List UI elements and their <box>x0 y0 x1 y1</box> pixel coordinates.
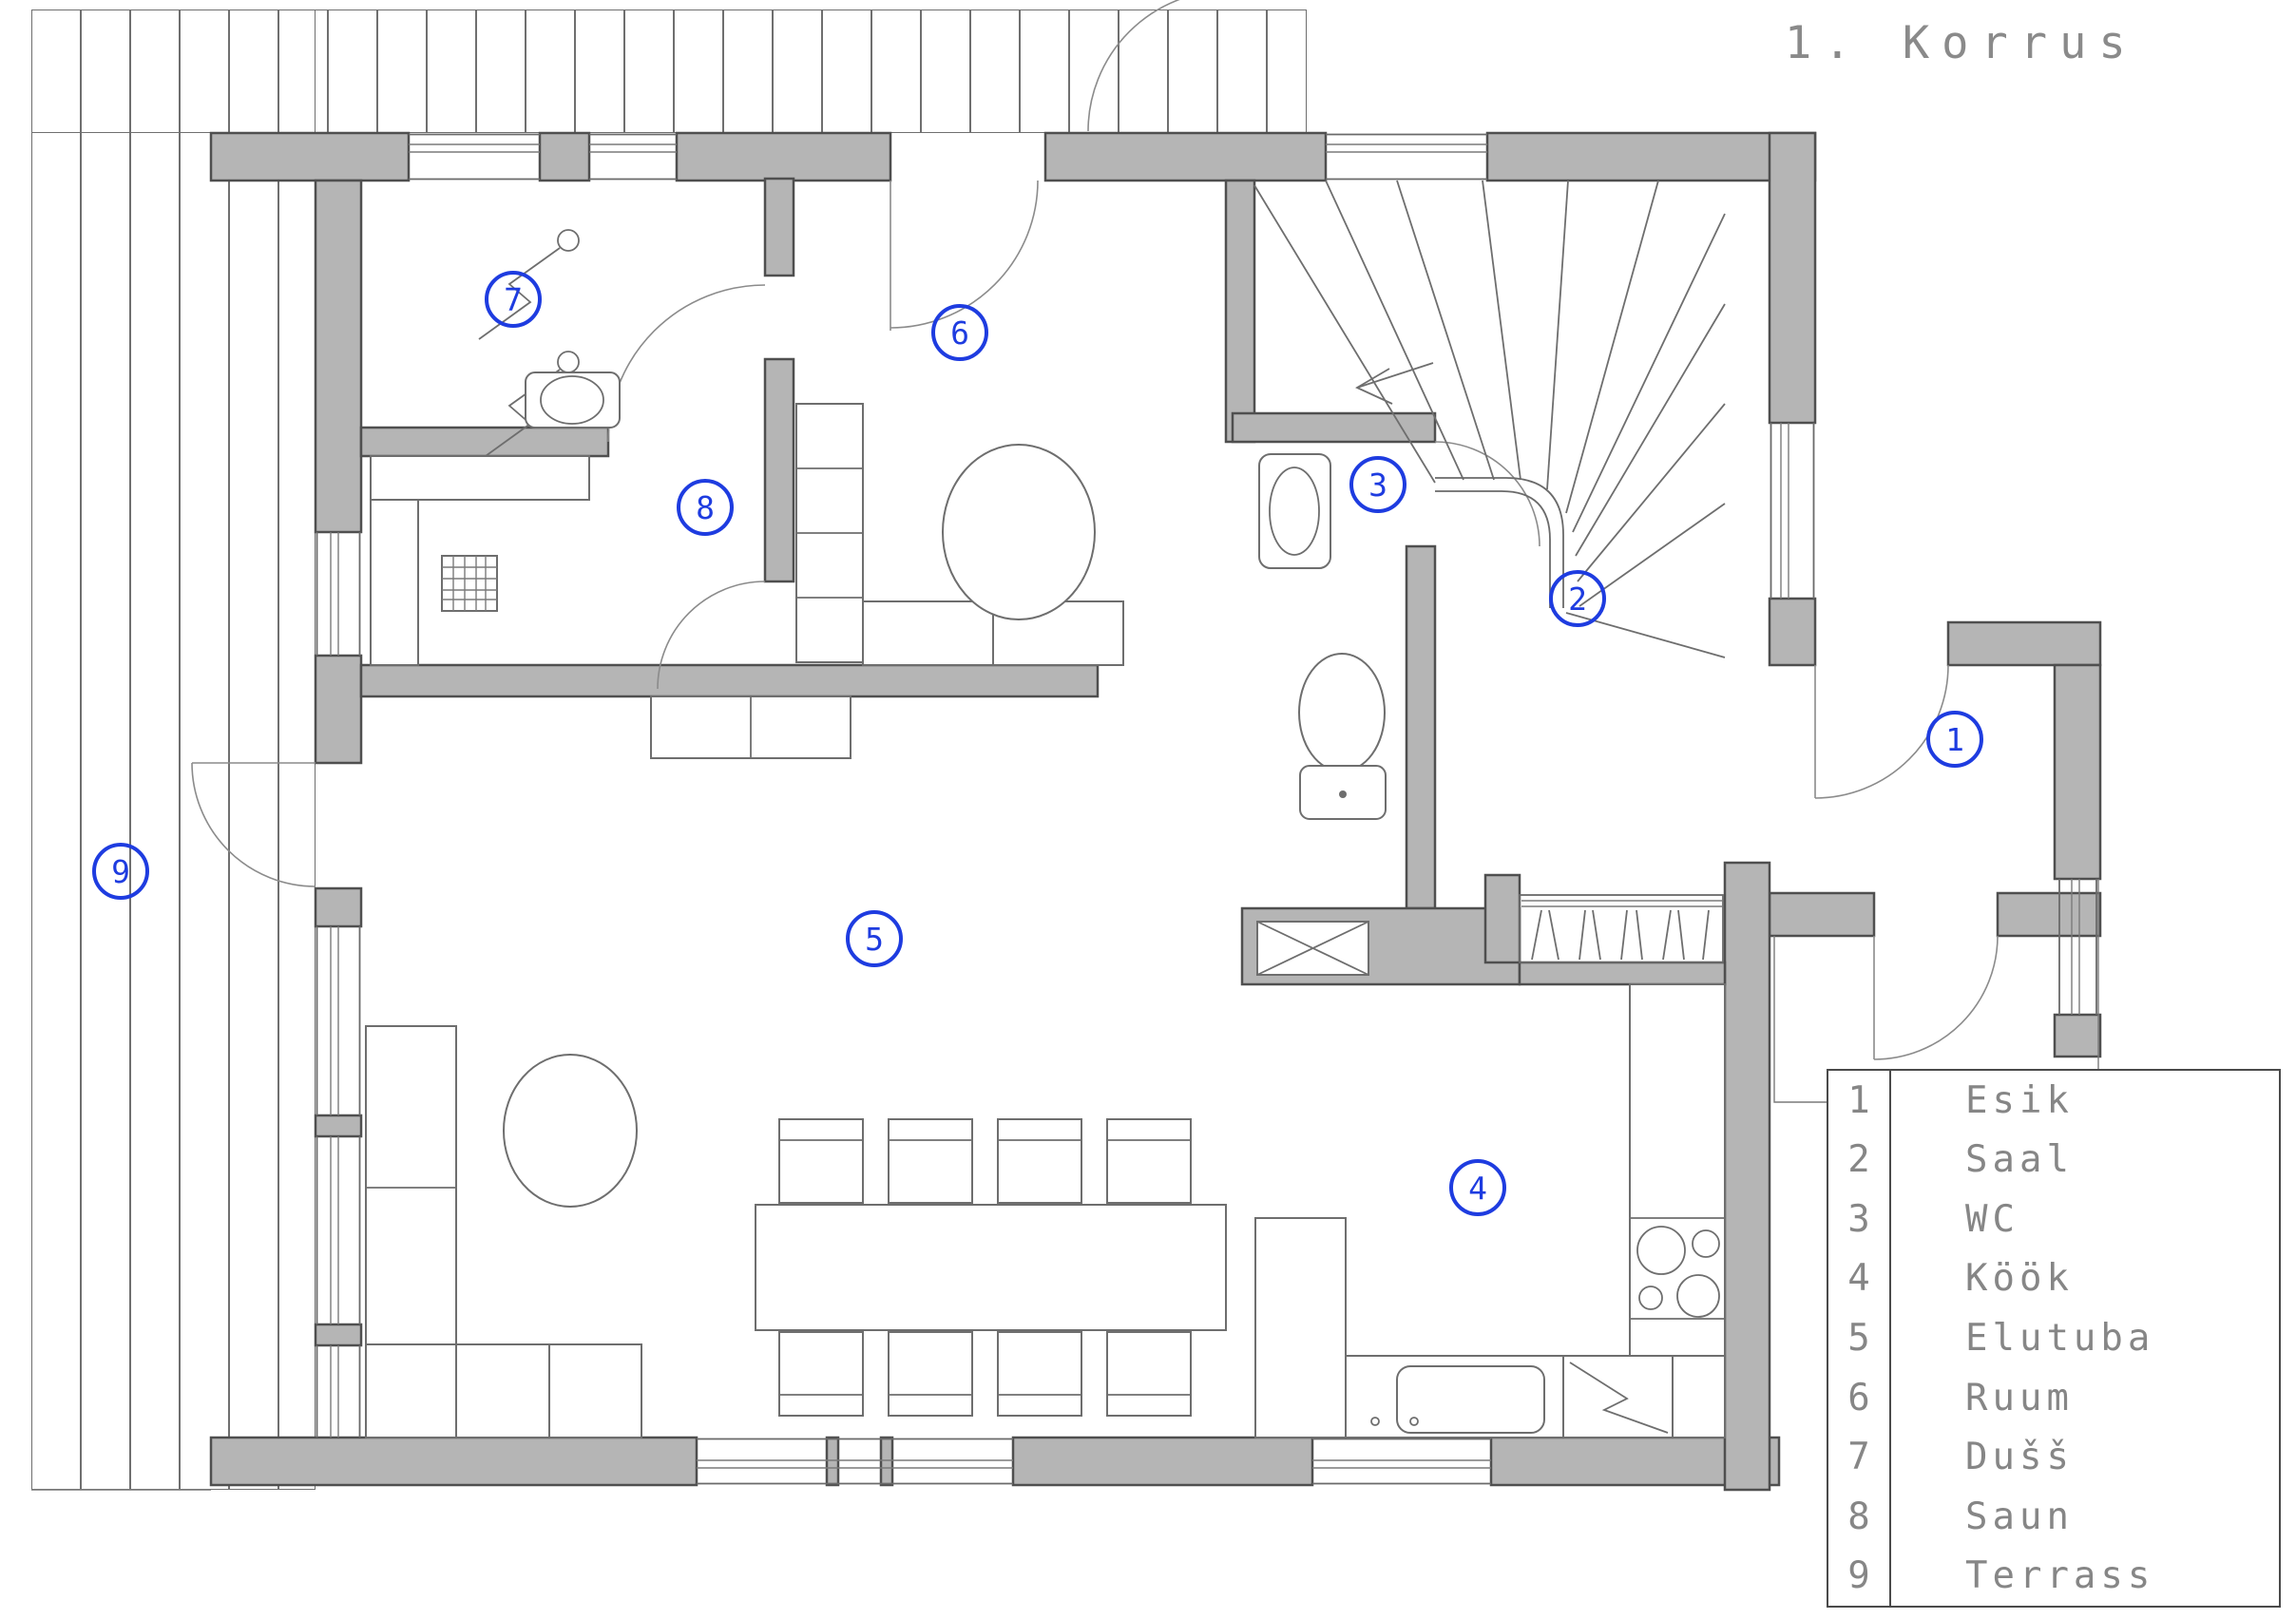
dining-chair <box>779 1332 863 1416</box>
stair-direction-arrow <box>1357 363 1433 404</box>
room-number: 3 <box>1368 469 1387 501</box>
legend-row: 4 Köök <box>1828 1249 2279 1309</box>
legend-row: 5 Elutuba <box>1828 1308 2279 1368</box>
dishwasher <box>1563 1356 1673 1438</box>
dining-chair <box>998 1119 1081 1203</box>
sideboard <box>651 696 851 758</box>
window-living-2 <box>317 1136 360 1324</box>
room-number: 9 <box>111 856 130 887</box>
dining-chair <box>889 1332 972 1416</box>
wc-sink <box>1259 454 1330 568</box>
legend-room-number: 9 <box>1828 1547 1891 1607</box>
dining-table-set <box>756 1119 1226 1416</box>
room-number: 5 <box>865 924 884 955</box>
room-number: 4 <box>1468 1172 1487 1204</box>
legend-room-name: Ruum <box>1891 1377 2074 1419</box>
legend-row: 8 Saun <box>1828 1487 2279 1547</box>
window-living-1 <box>317 926 360 1115</box>
legend-room-number: 2 <box>1828 1131 1891 1190</box>
front-door-esik <box>1874 936 1998 1059</box>
room-number-marker: 8 <box>677 479 734 536</box>
room-number-marker: 6 <box>931 304 988 361</box>
door-terrace <box>192 763 316 886</box>
legend-room-name: Terrass <box>1891 1554 2154 1597</box>
room-number-marker: 5 <box>846 910 903 967</box>
sink-room7 <box>526 372 620 428</box>
window-stairs <box>1326 135 1487 180</box>
side-table <box>504 1055 637 1207</box>
dining-chair <box>779 1119 863 1203</box>
fireplace <box>1257 922 1368 975</box>
room-number-marker: 4 <box>1449 1159 1506 1216</box>
dining-chair <box>1107 1332 1191 1416</box>
floorplan-canvas: 1 2 3 4 5 6 7 8 9 1. Korrus 1 Esik 2 Saa… <box>0 0 2296 1619</box>
room-number: 2 <box>1568 583 1587 615</box>
sauna-stove <box>442 556 497 611</box>
legend-row: 2 Saal <box>1828 1131 2279 1190</box>
legend-row: 9 Terrass <box>1828 1547 2279 1607</box>
legend-room-name: Dušš <box>1891 1436 2074 1478</box>
room-number: 1 <box>1945 724 1964 755</box>
legend-room-name: Köök <box>1891 1257 2074 1300</box>
door-room7 <box>608 285 765 442</box>
legend-room-name: Esik <box>1891 1079 2074 1122</box>
room6-round-table <box>943 445 1095 619</box>
room-number: 8 <box>696 492 715 524</box>
kitchen-sink <box>1371 1366 1544 1433</box>
window-living-3 <box>317 1345 360 1438</box>
legend-room-number: 5 <box>1828 1308 1891 1368</box>
legend-room-name: WC <box>1891 1198 2019 1241</box>
legend-room-number: 8 <box>1828 1487 1891 1547</box>
window-sauna <box>317 532 360 656</box>
room-number-marker: 3 <box>1349 456 1406 513</box>
room-number: 6 <box>950 317 969 349</box>
legend-row: 3 WC <box>1828 1190 2279 1249</box>
legend-room-number: 3 <box>1828 1190 1891 1249</box>
wc-toilet <box>1299 654 1386 819</box>
porch-outer-door <box>1088 0 1229 131</box>
legend-row: 6 Ruum <box>1828 1368 2279 1428</box>
window-room6 <box>589 135 677 180</box>
room-number: 7 <box>504 284 523 315</box>
window-kitchen-south <box>1312 1439 1491 1484</box>
legend-room-number: 1 <box>1828 1071 1891 1131</box>
legend-row: 1 Esik <box>1828 1071 2279 1131</box>
window-room7 <box>409 135 540 180</box>
legend-room-number: 4 <box>1828 1249 1891 1309</box>
hall-closet <box>1520 895 1723 962</box>
room-number-marker: 1 <box>1926 711 1983 768</box>
window-saal-east <box>1771 423 1814 599</box>
room-legend: 1 Esik 2 Saal 3 WC 4 Köök 5 Elutuba 6 Ru… <box>1827 1069 2281 1608</box>
legend-room-number: 6 <box>1828 1368 1891 1428</box>
page-title: 1. Korrus <box>1785 17 2279 69</box>
room-number-marker: 2 <box>1549 570 1606 627</box>
dining-chair <box>1107 1119 1191 1203</box>
dining-chair <box>889 1119 972 1203</box>
legend-room-name: Saun <box>1891 1495 2074 1538</box>
dining-chair <box>998 1332 1081 1416</box>
legend-room-name: Elutuba <box>1891 1317 2154 1360</box>
window-living-south <box>697 1439 1013 1484</box>
legend-row: 7 Dušš <box>1828 1427 2279 1487</box>
legend-room-name: Saal <box>1891 1138 2074 1181</box>
stair-handrail <box>1435 478 1563 608</box>
room-number-marker: 7 <box>485 271 542 328</box>
room-number-marker: 9 <box>92 843 149 900</box>
fridge-cabinet <box>1255 1218 1346 1438</box>
legend-room-number: 7 <box>1828 1427 1891 1487</box>
